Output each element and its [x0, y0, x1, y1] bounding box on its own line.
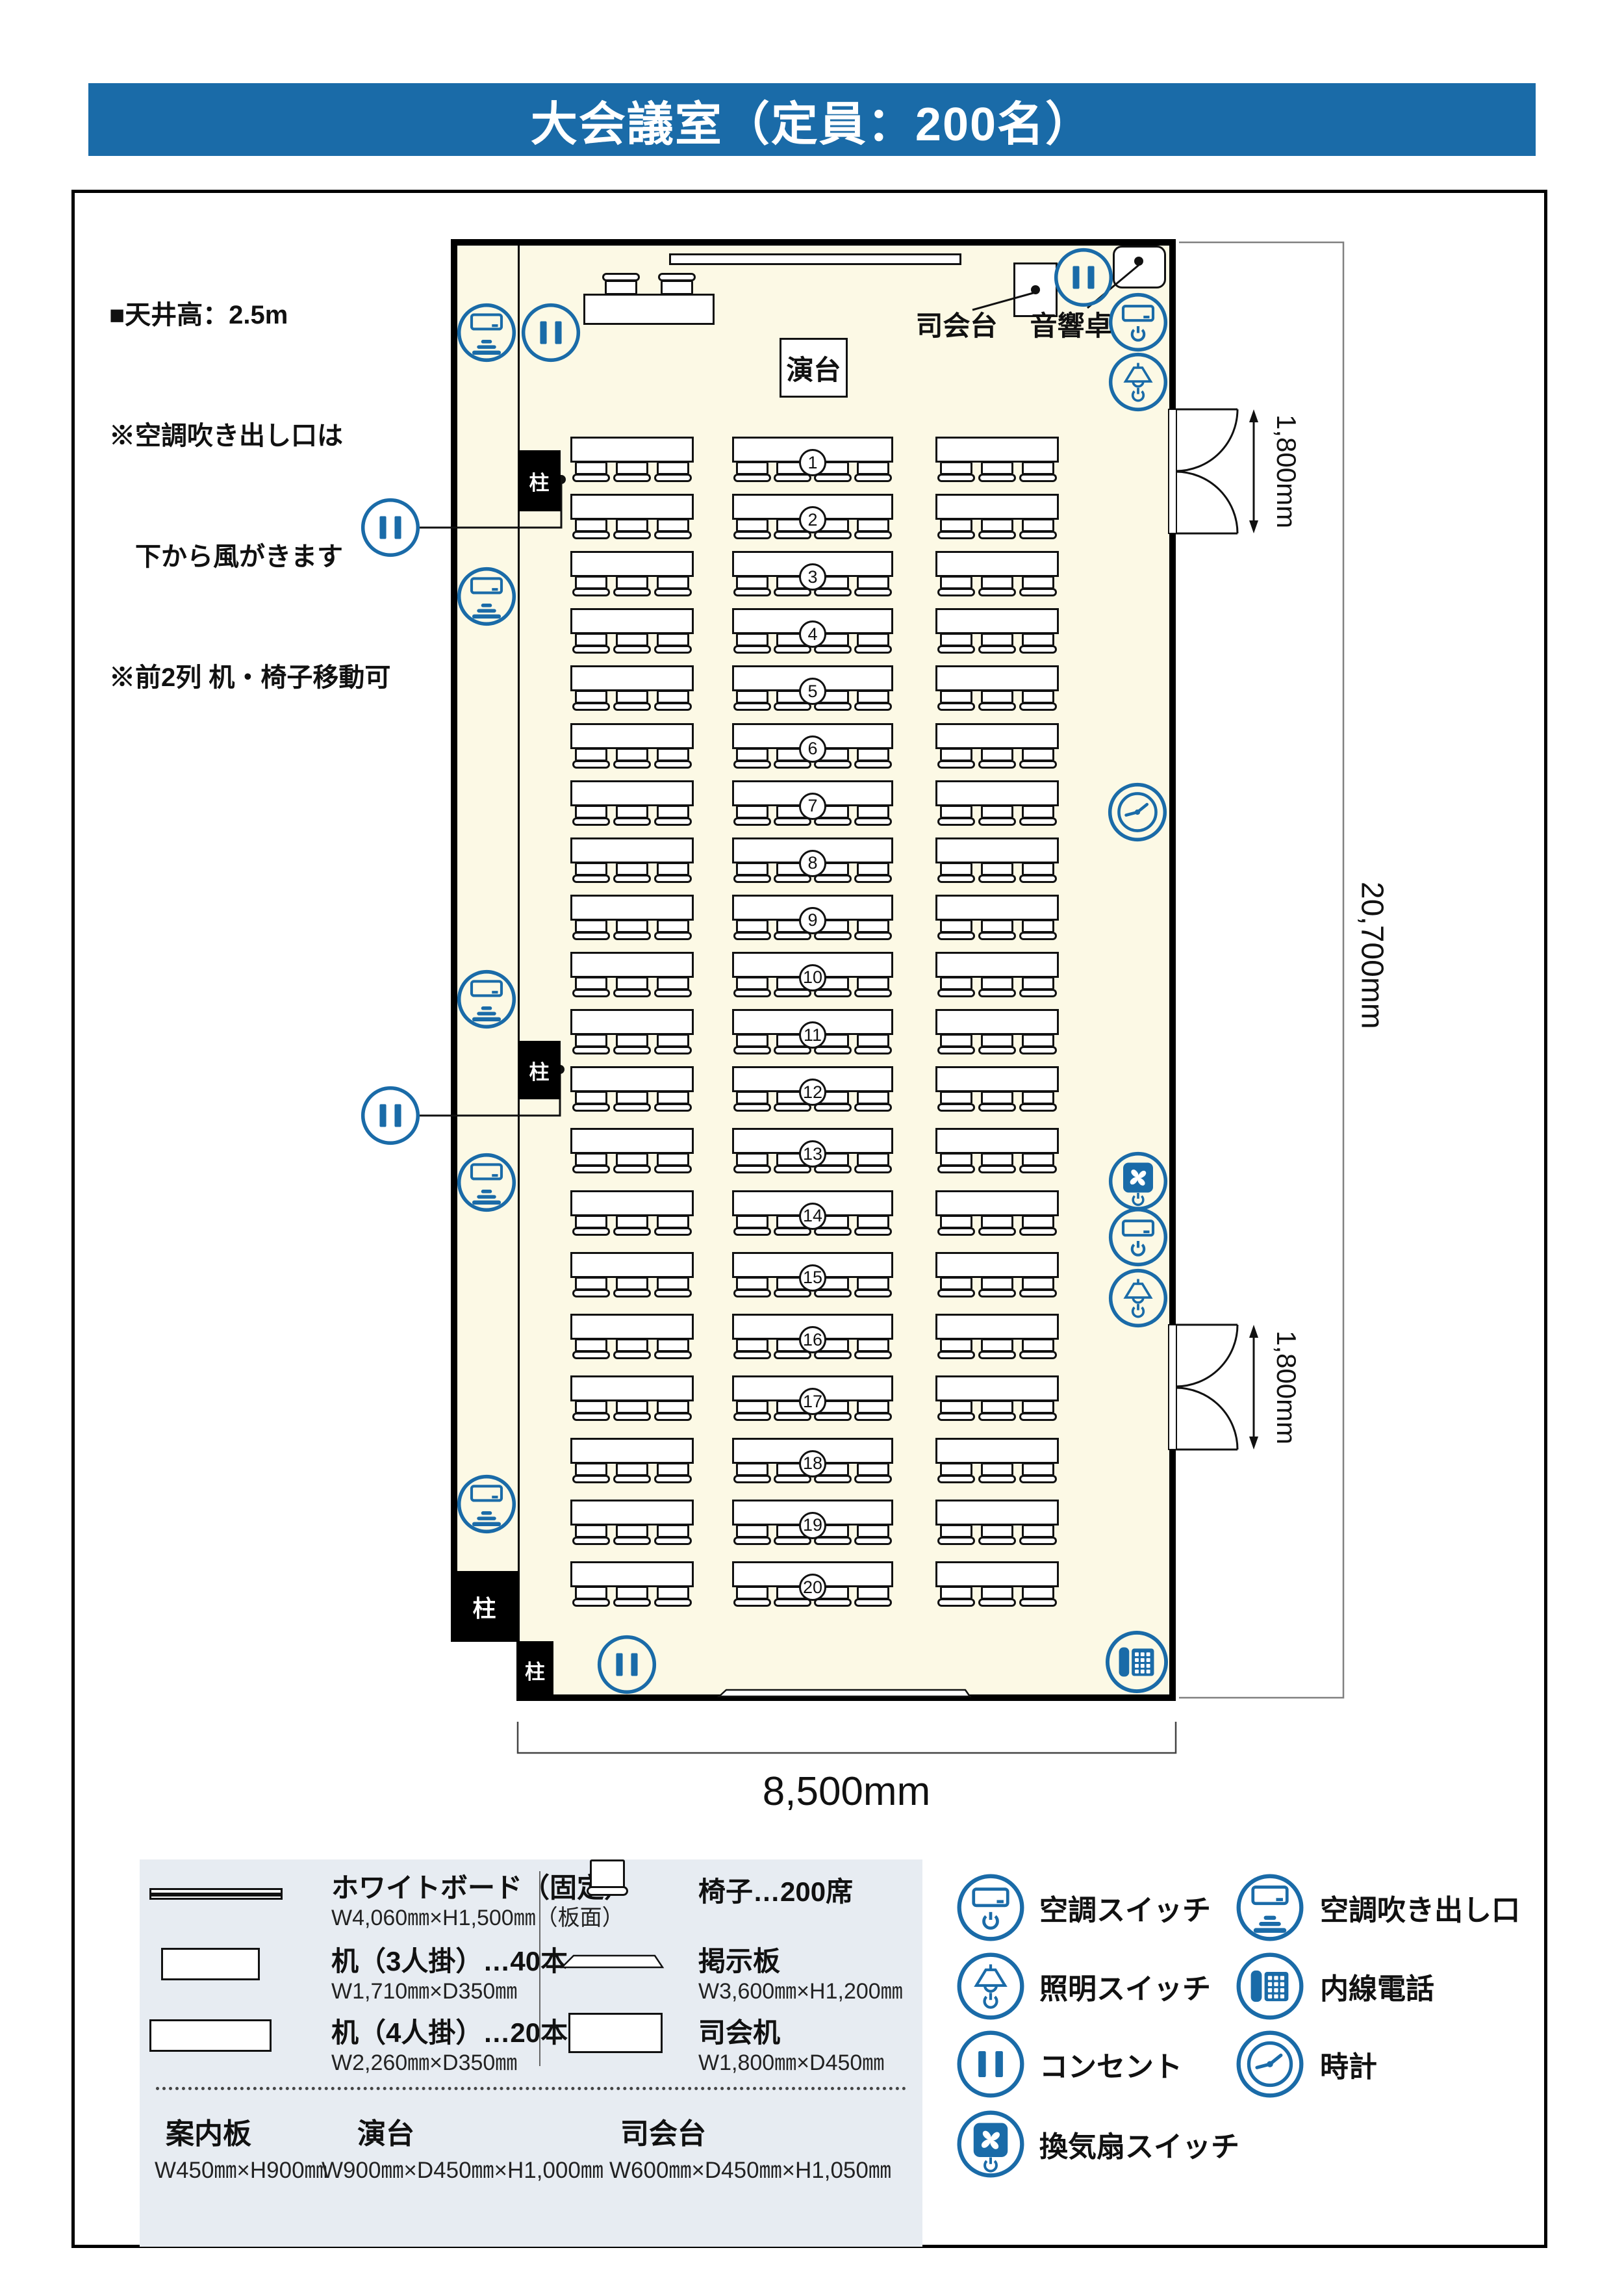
chair — [572, 932, 610, 940]
mc-stand-label-text: 司会台 — [915, 311, 997, 341]
chair — [940, 576, 972, 589]
chair — [733, 1537, 771, 1545]
legend-item-spec: W4,060㎜×H1,500㎜（板面） — [331, 1900, 624, 1932]
chair — [814, 1165, 852, 1173]
chair — [654, 760, 692, 769]
chair — [733, 702, 771, 711]
chair — [657, 633, 689, 646]
icon-legend-label: 時計 — [1320, 2045, 1377, 2084]
chair — [733, 932, 771, 940]
legend-text: 机（3人掛）…40本 — [331, 1946, 568, 1976]
chair — [854, 1165, 892, 1173]
chair — [940, 862, 972, 876]
legend-text: 掲示板 — [698, 1946, 780, 1976]
chair — [736, 1091, 768, 1105]
chair — [814, 1412, 852, 1421]
chair — [733, 1289, 771, 1297]
meeting-table — [935, 608, 1059, 634]
chair — [733, 588, 771, 596]
chair — [854, 474, 892, 482]
icon-label-text: 照明スイッチ — [1039, 1965, 1211, 2007]
chair — [1022, 748, 1054, 761]
chair — [981, 576, 1013, 589]
chair — [654, 1351, 692, 1359]
row-number-badge: 4 — [799, 620, 826, 648]
chair — [575, 977, 607, 990]
chair — [854, 1046, 892, 1054]
chair — [572, 1598, 610, 1607]
chair — [657, 1153, 689, 1166]
chair — [733, 1475, 771, 1483]
chair — [657, 862, 689, 876]
chair — [736, 1586, 768, 1600]
legend-text: W2,260㎜×D350㎜ — [331, 2050, 517, 2075]
chair — [774, 1537, 811, 1545]
legend-divider — [539, 1871, 540, 2066]
wall-top — [451, 239, 1176, 246]
dim-text: 20,700mm — [1354, 882, 1390, 1029]
chair — [940, 1091, 972, 1105]
legend-table3-symbol — [161, 1948, 260, 1980]
chair — [575, 1586, 607, 1600]
meeting-table — [935, 895, 1059, 921]
chair — [1022, 1400, 1054, 1414]
chair — [814, 817, 852, 826]
chair — [657, 1215, 689, 1229]
legend-text: 司会台 — [620, 2118, 706, 2150]
chair — [572, 531, 610, 539]
meeting-table — [935, 437, 1059, 463]
icon-legend-label: 換気扇スイッチ — [1039, 2125, 1239, 2164]
meeting-table — [935, 1009, 1059, 1035]
mc-desk — [583, 294, 715, 325]
chair — [572, 1537, 610, 1545]
chair — [937, 932, 975, 940]
chair — [1019, 1165, 1057, 1173]
chair — [981, 1400, 1013, 1414]
sound-desk-label: 音響卓 — [1014, 304, 1128, 344]
legend-item-name: 椅子…200席 — [698, 1870, 853, 1910]
chair — [654, 1103, 692, 1112]
chair — [814, 588, 852, 596]
chair — [981, 748, 1013, 761]
meeting-table — [935, 1500, 1059, 1526]
chair — [654, 1046, 692, 1054]
chair — [1019, 932, 1057, 940]
legend-bottom-spec: W900㎜×D450㎜×H1,000㎜ — [322, 2152, 603, 2185]
chair — [616, 805, 648, 819]
legend-item-spec: W1,800㎜×D450㎜ — [698, 2045, 884, 2076]
chair — [978, 1475, 1016, 1483]
chair — [854, 760, 892, 769]
chair — [1022, 1034, 1054, 1047]
chair — [1019, 1475, 1057, 1483]
legend-table4-symbol — [149, 2019, 272, 2052]
chair — [814, 989, 852, 997]
chair — [854, 1227, 892, 1236]
chair — [981, 919, 1013, 933]
chair — [937, 760, 975, 769]
chair — [736, 1215, 768, 1229]
pillar-label: 柱 — [529, 1056, 550, 1085]
chair — [814, 1103, 852, 1112]
chair — [654, 1227, 692, 1236]
chair — [616, 1463, 648, 1476]
chair — [854, 875, 892, 883]
chair — [978, 702, 1016, 711]
meeting-table — [935, 1561, 1059, 1587]
chair — [857, 748, 889, 761]
row-number-badge: 16 — [799, 1326, 826, 1353]
chair — [654, 531, 692, 539]
chair — [657, 576, 689, 589]
dimension-room-depth-label: 20,700mm — [1352, 819, 1391, 1092]
chair — [978, 1289, 1016, 1297]
meeting-table — [570, 723, 694, 749]
chair — [857, 1215, 889, 1229]
chair — [654, 875, 692, 883]
icon-legend-label: 空調吹き出し口 — [1320, 1888, 1520, 1927]
chair — [1019, 1598, 1057, 1607]
meeting-table — [570, 1009, 694, 1035]
chair — [613, 1289, 651, 1297]
row-number-badge: 14 — [799, 1203, 826, 1230]
chair — [613, 817, 651, 826]
chair — [940, 690, 972, 704]
chair — [854, 817, 892, 826]
chair — [981, 1034, 1013, 1047]
note-ac-vent-1: ※空調吹き出し口は — [109, 416, 390, 456]
row-number-badge: 7 — [799, 793, 826, 820]
chair — [981, 633, 1013, 646]
chair — [572, 474, 610, 482]
chair — [1022, 1277, 1054, 1290]
chair — [981, 977, 1013, 990]
row-number-badge: 6 — [799, 735, 826, 763]
chair — [657, 1091, 689, 1105]
chair — [1022, 633, 1054, 646]
chair — [616, 919, 648, 933]
chair — [978, 989, 1016, 997]
chair — [854, 1412, 892, 1421]
chair — [978, 588, 1016, 596]
pillar-label: 柱 — [529, 466, 550, 496]
chair — [857, 1463, 889, 1476]
chair — [657, 690, 689, 704]
chair — [940, 1215, 972, 1229]
chair — [1019, 817, 1057, 826]
chair — [774, 932, 811, 940]
chair — [1022, 1586, 1054, 1600]
chair — [774, 1351, 811, 1359]
wall-left — [451, 239, 457, 1642]
meeting-table — [935, 1438, 1059, 1464]
meeting-table — [570, 895, 694, 921]
meeting-table — [935, 1375, 1059, 1401]
chair — [981, 1524, 1013, 1538]
chair — [854, 989, 892, 997]
legend-text: 机（4人掛）…20本 — [331, 2017, 568, 2048]
chair — [575, 1091, 607, 1105]
chair — [1022, 461, 1054, 475]
dimension-door-top-label: 1,800mm — [1268, 409, 1304, 534]
legend-text: W600㎜×D450㎜×H1,050㎜ — [609, 2158, 891, 2183]
chair — [940, 1524, 972, 1538]
chair — [937, 645, 975, 654]
chair — [616, 748, 648, 761]
chair — [814, 760, 852, 769]
chair — [854, 1475, 892, 1483]
chair — [940, 518, 972, 532]
chair — [736, 748, 768, 761]
legend-bottom-spec: W450㎜×H900㎜ — [155, 2152, 327, 2185]
chair — [1019, 875, 1057, 883]
legend-bottom-spec: W600㎜×D450㎜×H1,050㎜ — [609, 2152, 891, 2185]
chair — [616, 1215, 648, 1229]
title-bar: 大会議室（定員：200名） — [88, 83, 1536, 156]
wall-right-seg1 — [1169, 239, 1176, 409]
chair — [733, 474, 771, 482]
chair — [613, 1475, 651, 1483]
chair — [937, 1598, 975, 1607]
chair — [605, 280, 637, 295]
meeting-table — [935, 780, 1059, 806]
icon-label-text: 時計 — [1320, 2043, 1377, 2085]
chair — [575, 576, 607, 589]
chair — [736, 919, 768, 933]
legend-bottom-name: 演台 — [357, 2110, 414, 2152]
chair — [937, 1475, 975, 1483]
chair — [733, 875, 771, 883]
chair — [1022, 1091, 1054, 1105]
chair — [940, 1153, 972, 1166]
chair — [774, 702, 811, 711]
chair — [854, 1598, 892, 1607]
dim-text: 1,800mm — [1271, 415, 1302, 528]
icon-label-text: コンセント — [1039, 2043, 1182, 2085]
chair — [981, 805, 1013, 819]
row-number-badge: 20 — [799, 1574, 826, 1601]
icon-legend-label: 空調スイッチ — [1039, 1888, 1211, 1927]
legend-text: 司会机 — [698, 2017, 780, 2048]
meeting-table — [570, 1314, 694, 1340]
chair — [937, 588, 975, 596]
chair — [654, 645, 692, 654]
chair — [654, 1598, 692, 1607]
chair — [814, 932, 852, 940]
chair — [978, 1165, 1016, 1173]
meeting-table — [570, 952, 694, 978]
sound-desk-label-text: 音響卓 — [1030, 311, 1111, 341]
legend-whiteboard-symbol-tray — [149, 1895, 283, 1900]
chair — [1019, 1227, 1057, 1236]
chair — [654, 1289, 692, 1297]
icon-legend-label: コンセント — [1039, 2045, 1182, 2084]
chair — [857, 977, 889, 990]
chair — [857, 1091, 889, 1105]
pillar-4: 柱 — [516, 1641, 553, 1698]
chair — [654, 989, 692, 997]
chair — [814, 1046, 852, 1054]
chair — [814, 875, 852, 883]
meeting-table — [935, 1252, 1059, 1278]
wall-right-seg3 — [1169, 1450, 1176, 1701]
row-number-badge: 1 — [799, 449, 826, 476]
chair — [937, 817, 975, 826]
chair — [937, 989, 975, 997]
meeting-table — [935, 551, 1059, 577]
chair — [940, 977, 972, 990]
chair — [978, 645, 1016, 654]
chair — [981, 518, 1013, 532]
chair — [736, 1277, 768, 1290]
chair — [616, 518, 648, 532]
chair — [978, 932, 1016, 940]
meeting-table — [570, 780, 694, 806]
chair — [857, 805, 889, 819]
chair — [616, 633, 648, 646]
chair — [814, 474, 852, 482]
chair — [613, 1103, 651, 1112]
chair — [736, 633, 768, 646]
chair — [736, 1400, 768, 1414]
chair — [857, 1277, 889, 1290]
chair — [857, 633, 889, 646]
chair — [1019, 1046, 1057, 1054]
meeting-table — [570, 437, 694, 463]
chair — [937, 702, 975, 711]
chair — [736, 1524, 768, 1538]
chair — [940, 748, 972, 761]
room-notes: ■天井高：2.5m ※空調吹き出し口は 下から風がきます ※前2列 机・椅子移動… — [109, 214, 390, 778]
chair — [572, 645, 610, 654]
chair — [940, 1463, 972, 1476]
chair — [981, 461, 1013, 475]
legend-text: W450㎜×H900㎜ — [155, 2158, 327, 2183]
chair — [661, 280, 693, 295]
chair — [616, 862, 648, 876]
chair — [857, 1153, 889, 1166]
chair — [940, 1400, 972, 1414]
chair — [1019, 531, 1057, 539]
chair — [814, 1537, 852, 1545]
legend-text: W1,710㎜×D350㎜ — [331, 1979, 517, 2004]
pillar-3: 柱 — [451, 1571, 518, 1642]
chair — [572, 1412, 610, 1421]
chair — [940, 805, 972, 819]
chair — [733, 1598, 771, 1607]
row-number-badge: 9 — [799, 907, 826, 934]
chair — [733, 1351, 771, 1359]
chair — [733, 531, 771, 539]
chair — [616, 576, 648, 589]
chair — [981, 1463, 1013, 1476]
row-number-badge: 12 — [799, 1079, 826, 1106]
chair — [937, 1537, 975, 1545]
meeting-table — [935, 494, 1059, 520]
chair — [978, 1598, 1016, 1607]
chair — [575, 1277, 607, 1290]
chair — [733, 1046, 771, 1054]
chair — [937, 1046, 975, 1054]
chair — [857, 1034, 889, 1047]
chair — [572, 1103, 610, 1112]
chair — [736, 862, 768, 876]
note-ceiling-height: ■天井高：2.5m — [109, 295, 390, 335]
chair — [1022, 1524, 1054, 1538]
chair — [654, 1165, 692, 1173]
chair — [736, 805, 768, 819]
chair — [978, 817, 1016, 826]
chair — [613, 760, 651, 769]
chair — [857, 1400, 889, 1414]
chair — [978, 875, 1016, 883]
chair — [616, 1277, 648, 1290]
legend-bottom-name: 案内板 — [166, 2110, 251, 2152]
meeting-table — [935, 1128, 1059, 1154]
chair — [657, 1463, 689, 1476]
dimension-room-width-label: 8,500mm — [717, 1769, 976, 1815]
meeting-table — [570, 1500, 694, 1526]
legend-text: W3,600㎜×H1,200㎜ — [698, 1979, 903, 2004]
chair — [654, 1412, 692, 1421]
chair — [937, 875, 975, 883]
chair — [733, 989, 771, 997]
chair — [575, 1463, 607, 1476]
chair — [1019, 474, 1057, 482]
chair — [940, 461, 972, 475]
chair — [613, 1351, 651, 1359]
chair — [774, 875, 811, 883]
chair — [654, 474, 692, 482]
meeting-table — [935, 837, 1059, 863]
chair — [572, 817, 610, 826]
chair — [616, 1524, 648, 1538]
chair — [654, 1475, 692, 1483]
chair — [774, 1412, 811, 1421]
chair — [978, 1537, 1016, 1545]
whiteboard — [669, 253, 961, 265]
chair — [657, 977, 689, 990]
pillar-label: 柱 — [472, 1590, 496, 1624]
chair — [1022, 518, 1054, 532]
chair — [733, 1103, 771, 1112]
row-number-badge: 15 — [799, 1264, 826, 1292]
chair — [572, 1289, 610, 1297]
row-number-badge: 11 — [799, 1021, 826, 1049]
chair — [814, 531, 852, 539]
chair — [736, 576, 768, 589]
row-number-badge: 18 — [799, 1450, 826, 1477]
icon-label-text: 空調スイッチ — [1039, 1887, 1211, 1928]
chair — [978, 1046, 1016, 1054]
chair — [1019, 702, 1057, 711]
chair — [736, 1338, 768, 1352]
chair — [854, 531, 892, 539]
chair — [733, 760, 771, 769]
chair — [575, 862, 607, 876]
chair — [774, 645, 811, 654]
chair — [575, 690, 607, 704]
chair — [654, 932, 692, 940]
chair — [616, 1338, 648, 1352]
meeting-table — [570, 608, 694, 634]
legend-text: W4,060㎜×H1,500㎜（板面） — [331, 1906, 624, 1930]
meeting-table — [570, 1375, 694, 1401]
chair — [736, 1034, 768, 1047]
chair — [1022, 1215, 1054, 1229]
chair — [940, 1586, 972, 1600]
